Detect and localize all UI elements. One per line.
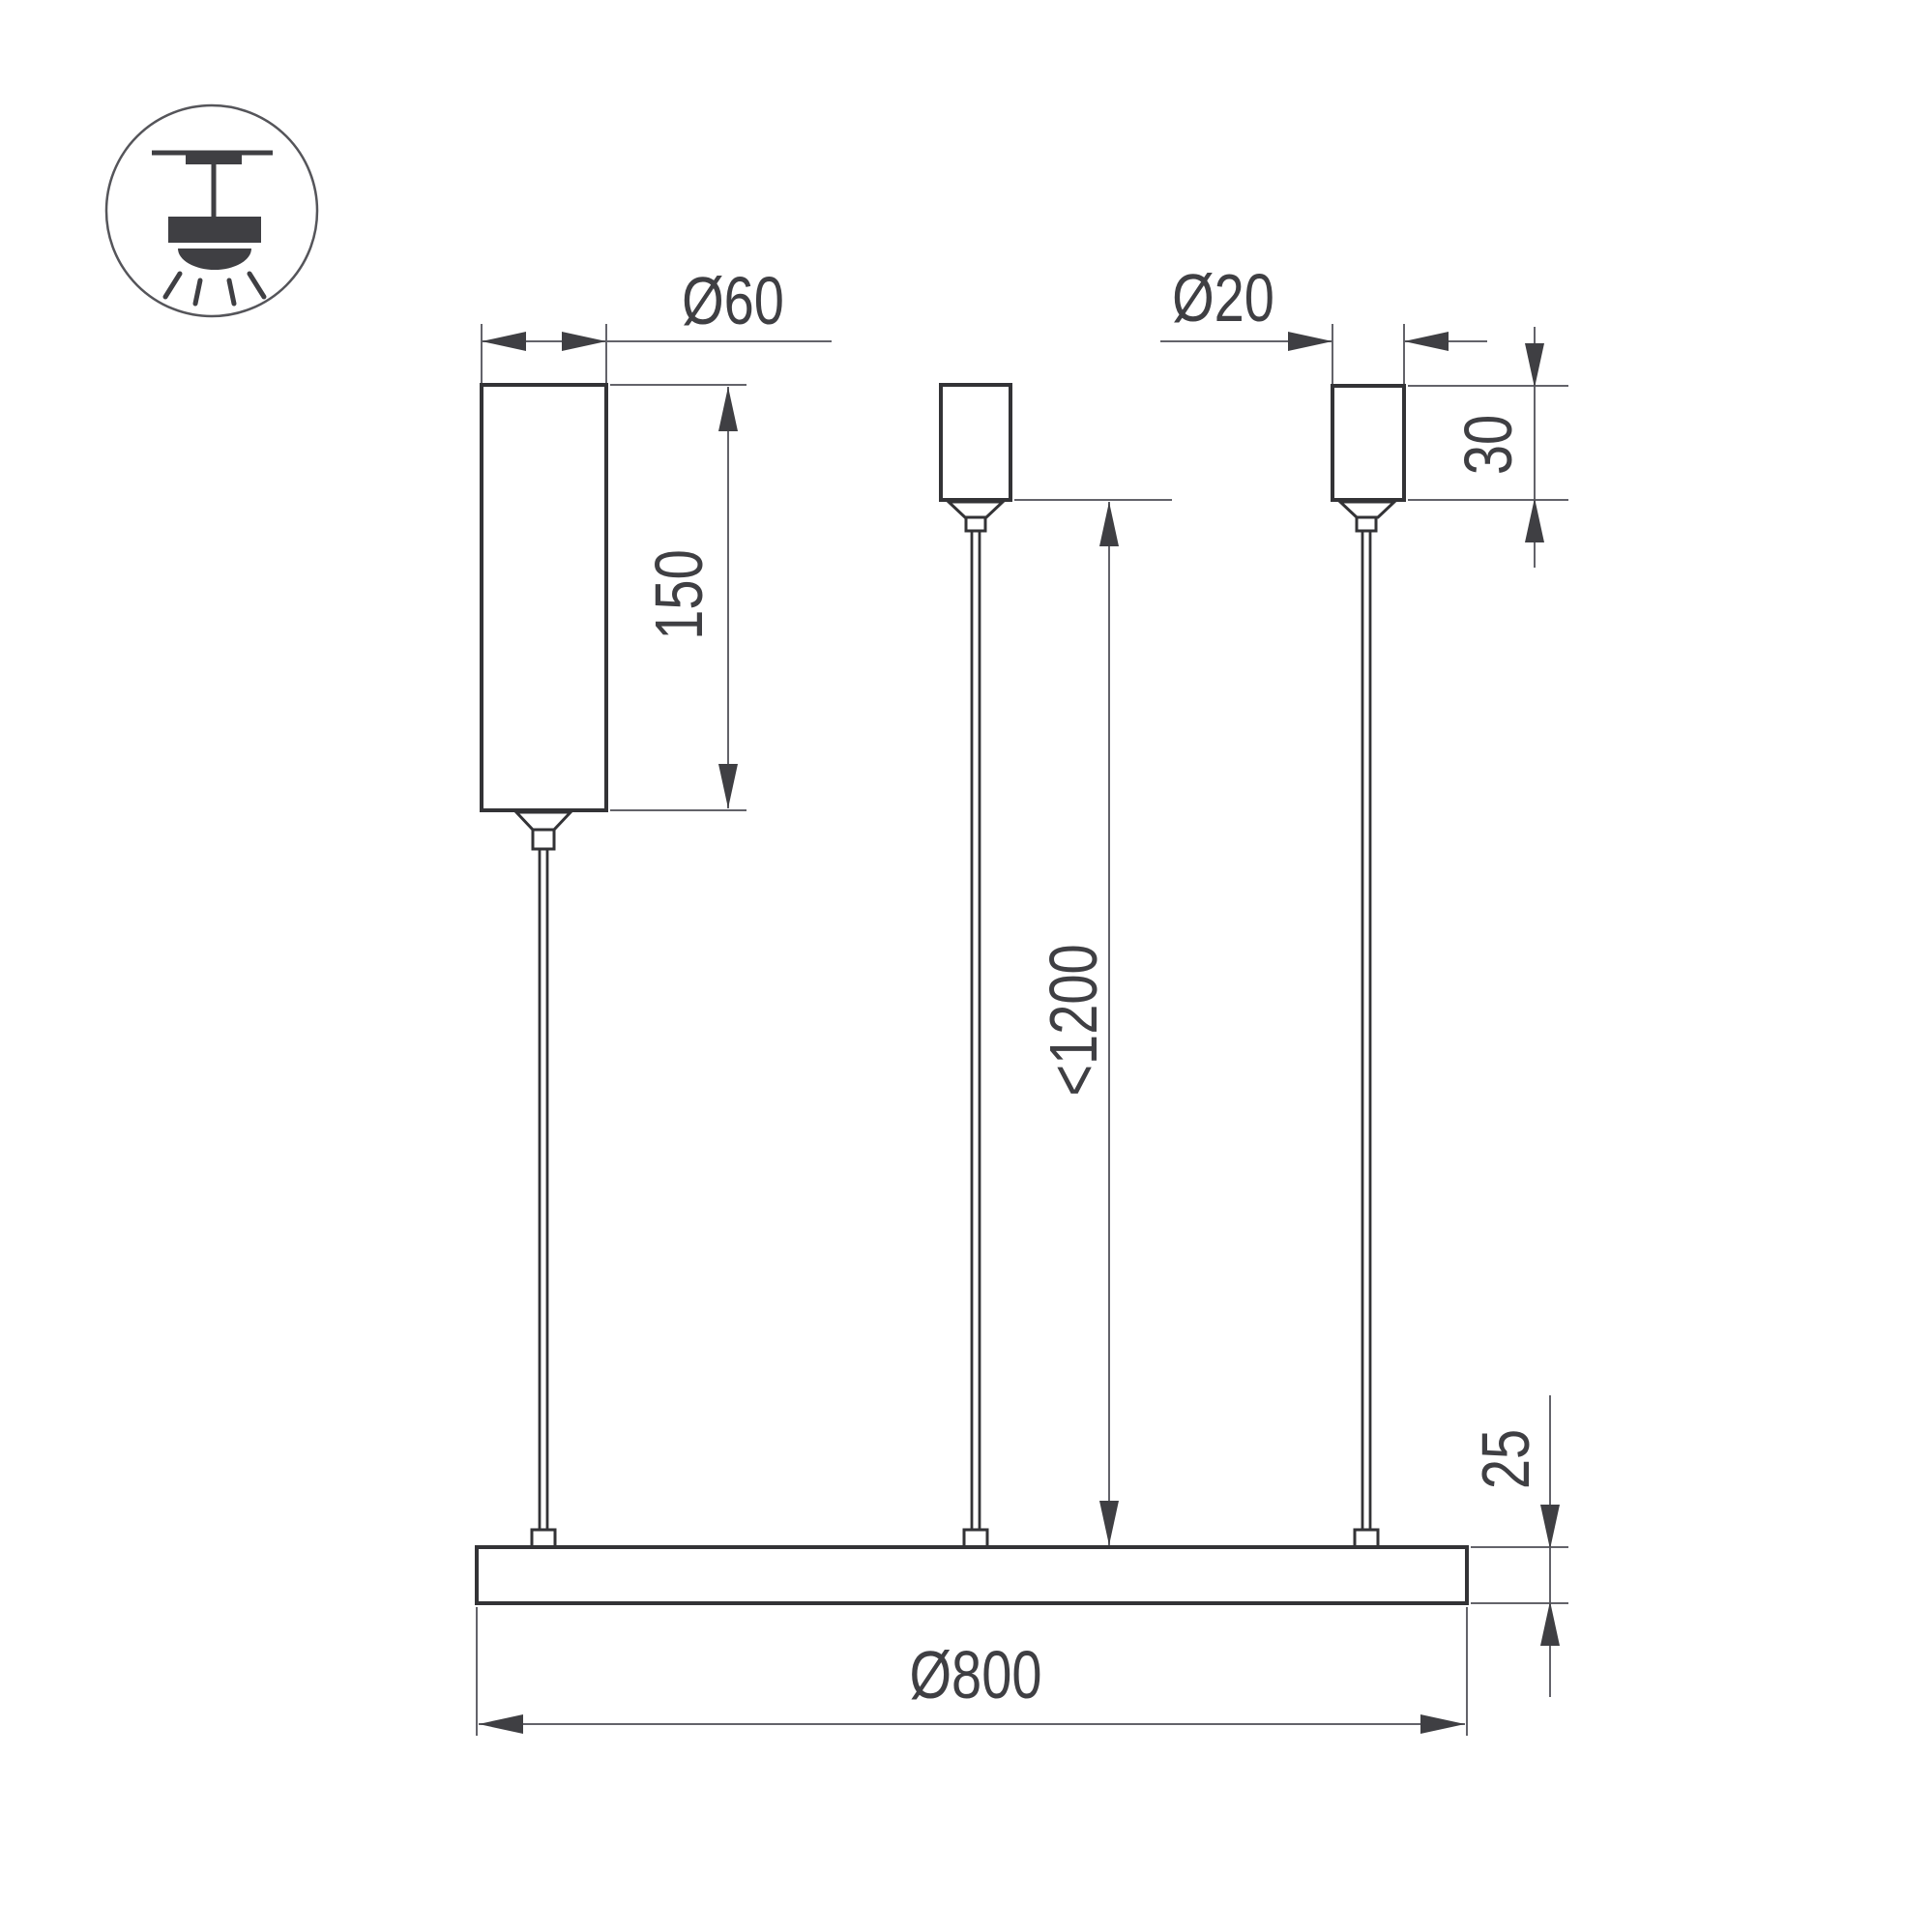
driver-cable-connector bbox=[533, 830, 554, 849]
pendant-bar bbox=[477, 1530, 1467, 1603]
driver-cable-gland bbox=[516, 812, 571, 830]
icon-light-rays bbox=[165, 274, 264, 304]
label-driver-height: 150 bbox=[645, 549, 713, 639]
icon-lamp-body bbox=[168, 217, 261, 243]
label-driver-diameter: Ø60 bbox=[682, 267, 784, 335]
label-bar-diameter: Ø800 bbox=[910, 1641, 1042, 1709]
middle-canopy-gland bbox=[949, 502, 1003, 517]
label-canopy-diameter: Ø20 bbox=[1172, 264, 1274, 332]
driver-housing bbox=[482, 385, 606, 849]
drawing-canvas: Ø60 150 Ø20 30 <1200 25 Ø800 bbox=[0, 0, 1932, 1932]
right-canopy-gland bbox=[1340, 502, 1394, 517]
right-canopy bbox=[1332, 386, 1404, 531]
pendant-ceiling-light-icon bbox=[106, 105, 317, 316]
label-canopy-height: 30 bbox=[1454, 415, 1522, 475]
bar-connector-middle bbox=[964, 1530, 987, 1547]
label-suspension-length: <1200 bbox=[1039, 944, 1107, 1096]
suspension-cable-left bbox=[540, 847, 547, 1532]
icon-lamp-dome bbox=[178, 249, 251, 270]
middle-canopy-connector bbox=[966, 517, 985, 531]
bar-connector-right bbox=[1355, 1530, 1378, 1547]
right-canopy-connector bbox=[1357, 517, 1376, 531]
bar-connector-left bbox=[532, 1530, 555, 1547]
suspension-cable-right bbox=[1362, 528, 1370, 1532]
middle-canopy bbox=[941, 385, 1010, 531]
label-bar-height: 25 bbox=[1472, 1429, 1539, 1489]
suspension-cable-middle bbox=[972, 528, 980, 1532]
